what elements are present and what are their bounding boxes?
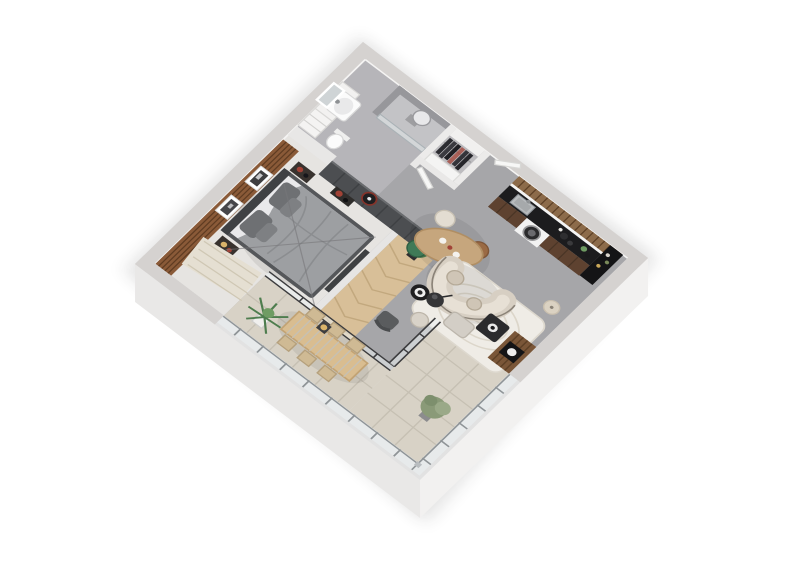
closet-wall-top-edge bbox=[332, 161, 440, 243]
mirror bbox=[317, 83, 344, 107]
shower-side-wall bbox=[372, 85, 405, 116]
railing-sw bbox=[217, 316, 418, 470]
counter-items bbox=[554, 227, 594, 259]
picture-frame-2 bbox=[215, 195, 243, 220]
bathroom-south-wall bbox=[288, 126, 337, 165]
glazing-east bbox=[389, 318, 440, 367]
wall-se-solid bbox=[509, 249, 648, 382]
kitchen bbox=[486, 176, 624, 287]
palm-fronds bbox=[240, 293, 292, 337]
building-face-se bbox=[398, 258, 670, 518]
floor-lamp-beige bbox=[540, 298, 563, 317]
closet-wall-panels bbox=[333, 172, 432, 250]
balcony-tile-grout bbox=[224, 227, 509, 463]
living-rug bbox=[408, 258, 549, 376]
balcony-glazing bbox=[265, 227, 441, 371]
kitchen-front-lines bbox=[496, 203, 578, 267]
hanging-clothes bbox=[434, 138, 473, 171]
terrace-chairs-south bbox=[277, 335, 336, 381]
bathroom-partition-wall bbox=[410, 124, 457, 168]
bathroom-floor bbox=[292, 60, 450, 196]
wall-nw bbox=[135, 42, 374, 273]
olive-plant bbox=[411, 391, 454, 428]
washing-machine-door bbox=[520, 223, 544, 243]
hall-plant-pot bbox=[406, 249, 420, 261]
bedroom-console bbox=[330, 186, 355, 207]
sofa-highlight bbox=[430, 263, 504, 324]
balcony-floor-west bbox=[224, 276, 390, 411]
floorplan-render bbox=[0, 0, 800, 566]
glazing-west-frames bbox=[265, 272, 395, 371]
living-area bbox=[373, 232, 571, 402]
media-wall-unit bbox=[488, 331, 537, 374]
lantern bbox=[316, 321, 332, 335]
vanity-drawer-lines bbox=[324, 91, 350, 113]
sofa-shadow bbox=[413, 249, 518, 336]
sink-basin bbox=[325, 90, 362, 122]
bed-shadow bbox=[213, 170, 379, 310]
console-decor bbox=[342, 197, 349, 203]
olive-pot bbox=[418, 409, 433, 422]
toilet bbox=[323, 128, 351, 152]
fireplace-inset bbox=[499, 341, 525, 363]
closet-wall bbox=[319, 161, 441, 256]
coffee-column-items bbox=[594, 253, 614, 271]
kitchen-sink bbox=[510, 194, 535, 215]
fireplace-bowl bbox=[505, 346, 518, 357]
pillow-3 bbox=[278, 196, 303, 218]
side-table-black bbox=[407, 281, 434, 304]
nightstand-north bbox=[290, 161, 316, 183]
bed-duvet bbox=[237, 181, 369, 294]
balcony-floor-east bbox=[349, 322, 509, 463]
door-leaf-closet bbox=[417, 167, 433, 189]
bedroom-floor bbox=[156, 131, 407, 351]
hall-divider-wall bbox=[311, 230, 399, 314]
dining-chair-green-w bbox=[403, 237, 431, 261]
living-floor bbox=[156, 60, 628, 463]
bed-platform bbox=[221, 168, 376, 299]
terrace-table-shadow bbox=[264, 299, 381, 395]
bed-bench bbox=[324, 249, 370, 293]
bedroom-rug-fringe bbox=[183, 239, 262, 304]
sofa-piping bbox=[416, 255, 515, 337]
ottoman-bench bbox=[442, 311, 476, 339]
sofa-bolster-1 bbox=[444, 268, 468, 288]
console-red-vase bbox=[334, 189, 344, 198]
bedroom bbox=[156, 131, 441, 377]
entry-partition bbox=[414, 155, 458, 190]
coffee-table-candle bbox=[490, 325, 496, 330]
kitchen-upper-shelf-gap bbox=[510, 183, 603, 254]
bed-sheet bbox=[230, 176, 370, 294]
kitchen-tap bbox=[525, 199, 531, 204]
terrace-chairs-north bbox=[306, 307, 365, 353]
pillow-2 bbox=[237, 208, 274, 240]
nightstand-south bbox=[212, 236, 239, 259]
wall-fan-hub bbox=[366, 196, 372, 201]
living-rug-wavy-lines bbox=[423, 271, 533, 363]
railing-se-posts bbox=[422, 387, 504, 465]
wardrobe-nook bbox=[403, 117, 523, 220]
railing-corner-post bbox=[414, 461, 422, 468]
glazing-east-frames bbox=[389, 318, 440, 367]
dining-tableware bbox=[435, 236, 463, 259]
hall-plant bbox=[402, 235, 438, 266]
pillow-4 bbox=[254, 221, 279, 243]
sofa-bolster-2 bbox=[464, 295, 485, 313]
pouf bbox=[407, 309, 432, 330]
glass-reflection-lines bbox=[220, 174, 384, 314]
bedroom-rug bbox=[182, 237, 262, 300]
kitchen-counter bbox=[498, 185, 601, 265]
wood-accent-slats bbox=[159, 142, 296, 273]
floor-lamp-black bbox=[423, 285, 453, 311]
pillow-1 bbox=[267, 181, 302, 213]
closet-rail bbox=[444, 142, 471, 162]
closet-shelf-unit bbox=[424, 153, 460, 182]
balcony bbox=[217, 227, 517, 476]
dining-set bbox=[394, 200, 505, 293]
wall-fan bbox=[359, 190, 380, 208]
wall-ne bbox=[354, 42, 648, 267]
railing-sw-posts bbox=[234, 329, 400, 457]
tall-cabinet bbox=[298, 108, 332, 138]
dining-chair-green-e bbox=[438, 259, 466, 283]
shower-head bbox=[409, 108, 434, 129]
kitchen-sink-bowl bbox=[514, 197, 532, 212]
closet-back-panel bbox=[450, 129, 485, 157]
hall-wood-floor bbox=[316, 235, 432, 341]
coffee-table bbox=[475, 312, 511, 343]
wardrobe-floor bbox=[414, 124, 490, 190]
dining-chair-cream-n bbox=[431, 207, 459, 231]
shower-glass bbox=[376, 114, 425, 152]
shower-drain bbox=[405, 114, 421, 127]
kitchen-upper-cabinets bbox=[510, 176, 622, 263]
sink-bowl bbox=[330, 94, 357, 118]
coffee-table-bowl bbox=[485, 322, 499, 334]
wall-sw-solid bbox=[135, 255, 224, 324]
palm-pot bbox=[252, 313, 269, 328]
sink-tap bbox=[334, 98, 341, 104]
closet-side-left bbox=[419, 124, 457, 159]
kitchen-base-fronts bbox=[486, 196, 590, 278]
door-leaf-entry bbox=[495, 160, 521, 168]
bathroom bbox=[284, 56, 457, 204]
media-wall-slats bbox=[492, 334, 532, 370]
tall-cabinet-lines bbox=[304, 114, 327, 133]
railing-se bbox=[411, 374, 518, 476]
terrace-table bbox=[281, 311, 368, 381]
kitchen-upper-slats bbox=[516, 180, 616, 258]
building-shadow bbox=[107, 33, 682, 524]
washing-machine bbox=[514, 218, 550, 248]
terrace-table-slats bbox=[287, 316, 362, 377]
headboard bbox=[221, 168, 292, 235]
duvet-creases bbox=[245, 188, 365, 291]
glazing-west bbox=[265, 272, 395, 371]
dining-shadow bbox=[395, 200, 504, 292]
hall-wood-herringbone bbox=[316, 243, 423, 340]
coffee-column bbox=[580, 245, 624, 285]
building-face-sw bbox=[113, 264, 442, 518]
vanity-cabinet bbox=[315, 82, 359, 122]
dining-table bbox=[410, 221, 487, 273]
wood-accent-wall bbox=[156, 139, 299, 275]
dining-chair-brown bbox=[465, 238, 493, 262]
shower-back-wall bbox=[394, 85, 450, 129]
floorplan-stage bbox=[0, 0, 800, 566]
picture-frame-1 bbox=[245, 166, 273, 191]
shower-tray bbox=[380, 95, 446, 150]
wall-inner-lip bbox=[156, 60, 628, 463]
closet-side-right bbox=[453, 150, 491, 185]
armchair-gray bbox=[373, 309, 401, 332]
palm-plant bbox=[240, 293, 292, 337]
sofa bbox=[430, 263, 504, 324]
